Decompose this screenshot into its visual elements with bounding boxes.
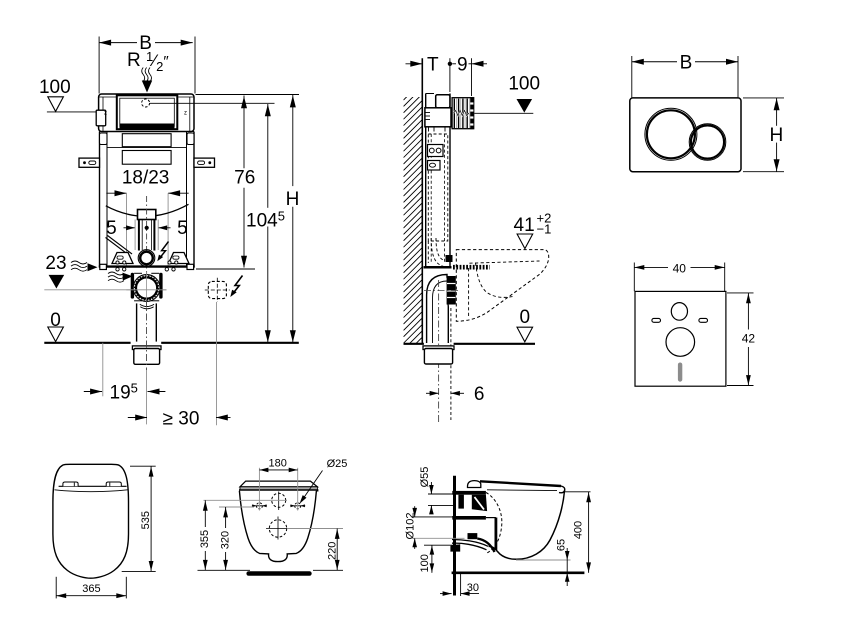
svg-text:B: B — [680, 52, 693, 73]
svg-text:18/23: 18/23 — [122, 168, 170, 189]
svg-text:40: 40 — [673, 261, 687, 275]
svg-text:320: 320 — [220, 531, 232, 549]
svg-text:H: H — [770, 125, 784, 146]
svg-text:365: 365 — [82, 583, 100, 595]
svg-text:6: 6 — [474, 384, 485, 405]
svg-text:76: 76 — [234, 167, 255, 188]
svg-text:100: 100 — [39, 77, 71, 98]
svg-text:400: 400 — [573, 521, 585, 539]
svg-text:0: 0 — [520, 307, 531, 328]
svg-text:23: 23 — [45, 253, 66, 274]
svg-text:65: 65 — [556, 539, 568, 551]
svg-text:Ø55: Ø55 — [419, 467, 431, 488]
svg-text:180: 180 — [269, 457, 287, 469]
svg-text:355: 355 — [199, 530, 211, 548]
svg-text:42: 42 — [742, 332, 756, 346]
svg-text:H: H — [286, 189, 300, 210]
svg-text:41: 41 — [514, 215, 535, 236]
svg-text:5: 5 — [177, 218, 188, 239]
svg-text:9: 9 — [457, 54, 468, 75]
svg-text:z: z — [104, 111, 107, 117]
svg-text:535: 535 — [140, 511, 152, 529]
svg-text:−1: −1 — [537, 222, 552, 237]
svg-text:Ø25: Ø25 — [327, 458, 348, 470]
svg-text:T: T — [427, 54, 439, 75]
svg-text:≥ 30: ≥ 30 — [163, 408, 200, 429]
svg-text:220: 220 — [327, 542, 339, 560]
svg-text:100: 100 — [508, 73, 540, 94]
svg-text:z: z — [184, 111, 187, 117]
svg-text:100: 100 — [419, 554, 431, 572]
